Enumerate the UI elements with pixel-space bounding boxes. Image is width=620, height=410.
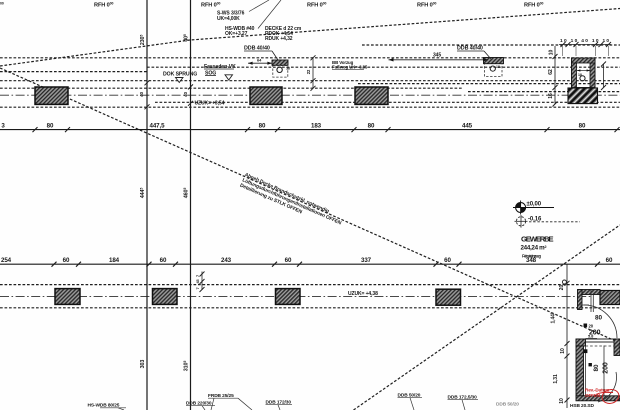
svg-text:UK=4,00K: UK=4,00K [217, 16, 240, 22]
svg-text:80: 80 [593, 364, 600, 371]
svg-text:200: 200 [603, 362, 610, 374]
svg-text:40: 40 [139, 92, 144, 97]
svg-text:±0,00: ±0,00 [527, 201, 542, 207]
svg-text:OK=+3,27: OK=+3,27 [225, 31, 248, 37]
svg-text:60: 60 [606, 257, 613, 264]
svg-text:337: 337 [361, 257, 372, 264]
svg-text:RDUK +4,32: RDUK +4,32 [265, 36, 293, 42]
svg-text:45: 45 [196, 279, 200, 283]
svg-text:20: 20 [559, 285, 565, 291]
svg-text:80: 80 [47, 123, 54, 130]
svg-text:10: 10 [560, 348, 566, 354]
svg-text:80: 80 [259, 123, 266, 130]
svg-text:445: 445 [462, 122, 473, 129]
svg-text:18: 18 [578, 73, 582, 77]
svg-text:HSB 20.SD: HSB 20.SD [570, 403, 595, 409]
svg-text:80: 80 [368, 123, 375, 130]
svg-text:60: 60 [285, 257, 292, 264]
svg-text:244,24 m2: 244,24 m2 [521, 244, 548, 252]
svg-text:80: 80 [579, 123, 586, 130]
svg-text:22: 22 [306, 69, 311, 74]
svg-text:10: 10 [549, 50, 555, 56]
svg-text:UZUK= +4,38: UZUK= +4,38 [348, 291, 378, 297]
svg-text:20: 20 [589, 324, 594, 329]
svg-text:DDB 50/20: DDB 50/20 [496, 402, 519, 408]
svg-text:16: 16 [548, 93, 554, 99]
svg-text:80: 80 [595, 315, 602, 322]
svg-text:183: 183 [311, 123, 322, 130]
svg-text:1,31: 1,31 [553, 374, 559, 384]
svg-text:254: 254 [1, 257, 12, 264]
svg-text:10: 10 [559, 398, 565, 404]
svg-text:60: 60 [444, 257, 451, 264]
svg-text:60: 60 [160, 257, 167, 264]
svg-text:243: 243 [221, 257, 232, 264]
svg-text:GEWERBE: GEWERBE [521, 235, 554, 244]
svg-text:18: 18 [286, 67, 290, 71]
svg-text:184: 184 [109, 257, 120, 264]
svg-text:345: 345 [433, 53, 441, 59]
svg-text:DOK SPRUNG: DOK SPRUNG [163, 72, 197, 78]
svg-text:-0,16: -0,16 [528, 216, 542, 222]
svg-text:40: 40 [183, 92, 188, 97]
svg-text:18: 18 [496, 65, 500, 69]
svg-text:60: 60 [63, 257, 70, 264]
svg-text:447,5: 447,5 [150, 122, 166, 129]
svg-text:303: 303 [140, 360, 146, 369]
svg-text:UZUK= +3,54: UZUK= +3,54 [195, 101, 225, 107]
svg-text:Feinsteinzeug: Feinsteinzeug [522, 254, 542, 259]
svg-text:62: 62 [548, 69, 554, 75]
svg-text:7: 7 [196, 287, 200, 289]
svg-text:7: 7 [196, 275, 200, 277]
svg-text:Fußweg UK=-3,85: Fußweg UK=-3,85 [332, 65, 368, 70]
svg-text:10 10 40 10 10: 10 10 40 10 10 [560, 38, 609, 44]
svg-text:5.8: 5.8 [588, 334, 594, 339]
